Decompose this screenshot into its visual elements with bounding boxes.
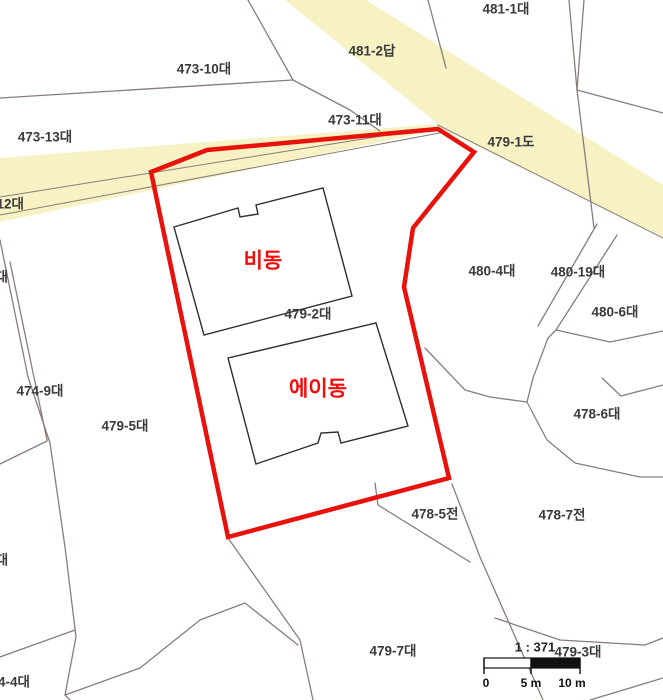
- parcel-label: 478-7전: [539, 507, 586, 523]
- parcel-label: 대: [0, 553, 8, 568]
- scale-bar-white-segment: [484, 658, 531, 668]
- scale-tick-label: 0: [483, 676, 490, 690]
- parcel-label: 473-11대: [328, 113, 382, 128]
- parcel-label: 3대: [0, 270, 8, 285]
- parcel-label: 473-10대: [177, 62, 231, 77]
- building-label-2: 에이동: [289, 378, 347, 401]
- map-canvas[interactable]: 비동에이동481-1대481-2답473-10대473-13대473-11대47…: [0, 0, 663, 700]
- parcel-label: 479-2대: [285, 307, 332, 322]
- parcel-label: 474-9대: [17, 384, 64, 399]
- cadastral-map-viewer: 비동에이동481-1대481-2답473-10대473-13대473-11대47…: [0, 0, 663, 700]
- parcel-label: 479-3대: [555, 645, 602, 660]
- parcel-label: 478-6대: [574, 407, 621, 422]
- scale-bar-black-segment: [531, 658, 580, 668]
- scale-tick-label: 10 m: [558, 676, 585, 690]
- parcel-label: 479-1도: [488, 135, 536, 150]
- parcel-label: 480-6대: [592, 305, 639, 320]
- scale-tick-label: 5 m: [521, 676, 542, 690]
- parcel-label: -12대: [0, 197, 24, 212]
- parcel-label: 473-13대: [18, 130, 72, 145]
- parcel-label: 480-4대: [469, 264, 516, 279]
- parcel-label: 478-5전: [412, 506, 459, 522]
- building-label-1: 비동: [244, 250, 283, 273]
- parcel-label: 4-4대: [0, 675, 30, 690]
- parcel-label: 480-19대: [551, 265, 605, 280]
- parcel-label: 481-2답: [349, 43, 397, 59]
- parcel-label: 479-7대: [370, 644, 417, 659]
- parcel-label: 481-1대: [483, 2, 530, 17]
- scale-ratio-label: 1 : 371: [515, 639, 555, 654]
- parcel-label: 479-5대: [102, 419, 149, 434]
